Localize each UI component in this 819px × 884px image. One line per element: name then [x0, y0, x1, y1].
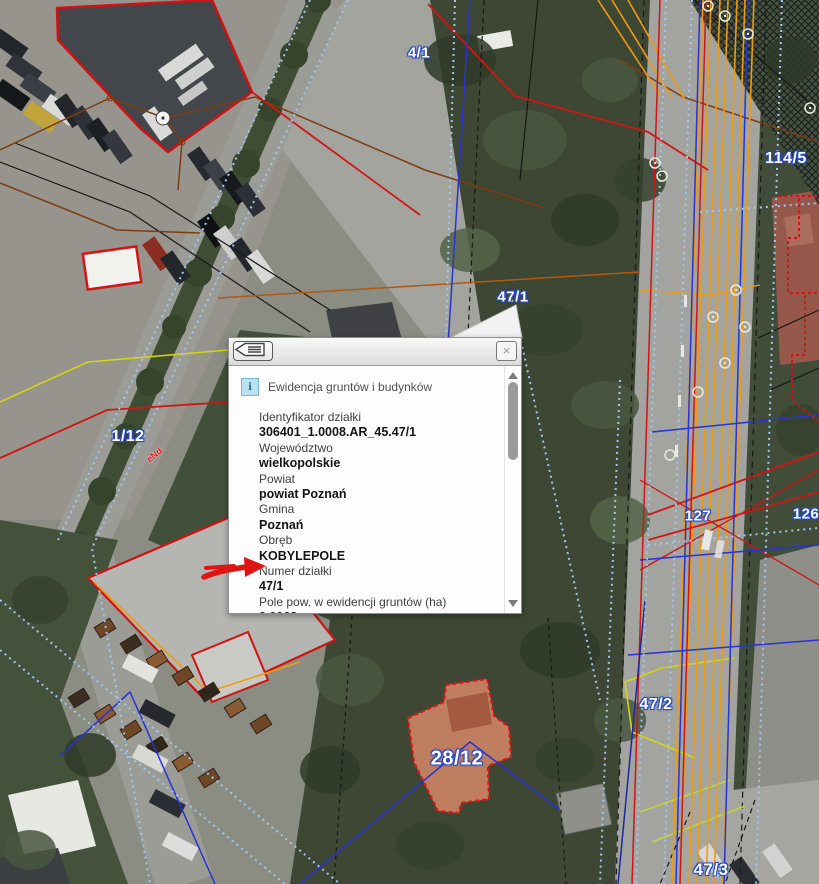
- parcel-label: 47/2: [639, 696, 672, 714]
- attribute-list: Identyfikator działki 306401_1.0008.AR_4…: [259, 410, 505, 613]
- field-label: Województwo: [259, 441, 505, 456]
- parcel-label: 28/12: [431, 748, 484, 771]
- scroll-down-icon[interactable]: [508, 600, 518, 607]
- field-value: 306401_1.0008.AR_45.47/1: [259, 425, 505, 440]
- parcel-label: 126: [793, 506, 819, 523]
- scrollbar-thumb[interactable]: [508, 382, 518, 460]
- parcel-label: 47/3: [693, 860, 728, 880]
- info-popup: × i Ewidencja gruntów i budynków Identyf…: [228, 337, 522, 614]
- parcel-label: 114/5: [765, 150, 807, 168]
- list-arrow-icon: [234, 342, 266, 357]
- field-label: Numer działki: [259, 564, 505, 579]
- scroll-up-icon[interactable]: [508, 372, 518, 379]
- popup-title: Ewidencja gruntów i budynków: [268, 380, 432, 394]
- field-value: 47/1: [259, 579, 505, 594]
- parcel-label: 47/1: [497, 289, 528, 306]
- field-label: Powiat: [259, 472, 505, 487]
- field-value: powiat Poznań: [259, 487, 505, 502]
- map-viewer: 4/1 114/5 47/1 1/12 127 126 47/2 28/12 4…: [0, 0, 819, 884]
- popup-header: ×: [229, 338, 521, 366]
- field-label: Pole pow. w ewidencji gruntów (ha): [259, 595, 505, 610]
- field-value: Poznań: [259, 518, 505, 533]
- parcel-label: 127: [685, 508, 712, 525]
- popup-body: i Ewidencja gruntów i budynków Identyfik…: [229, 366, 505, 613]
- field-value: 0.0968: [259, 610, 505, 613]
- close-icon[interactable]: ×: [496, 341, 517, 361]
- info-icon: i: [241, 378, 259, 396]
- back-to-list-button[interactable]: [233, 341, 273, 361]
- field-label: Obręb: [259, 533, 505, 548]
- field-value: wielkopolskie: [259, 456, 505, 471]
- popup-scrollbar[interactable]: [504, 366, 521, 613]
- parcel-label: 1/12: [111, 428, 144, 446]
- field-label: Identyfikator działki: [259, 410, 505, 425]
- field-label: Gmina: [259, 502, 505, 517]
- field-value: KOBYLEPOLE: [259, 549, 505, 564]
- parcel-label: 4/1: [408, 45, 430, 62]
